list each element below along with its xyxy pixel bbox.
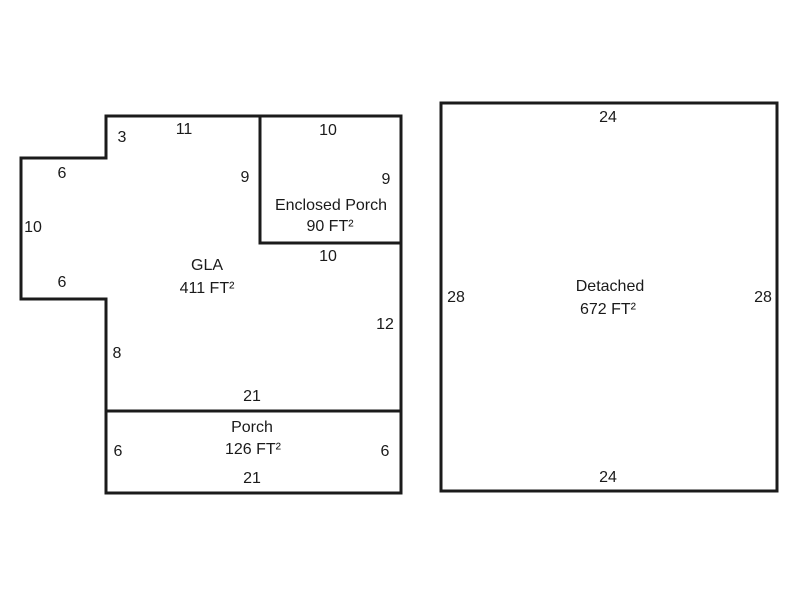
dim-detached-bottom: 24: [599, 470, 617, 486]
enclosed-porch-area: 90 FT²: [306, 219, 353, 235]
dim-enclosed-porch-left-inner: 9: [241, 170, 250, 186]
dim-top: 11: [176, 122, 193, 138]
dim-left-lower: 8: [113, 346, 122, 362]
dim-detached-left: 28: [447, 290, 465, 306]
porch-area: 126 FT²: [225, 442, 281, 458]
dim-top-step: 3: [118, 130, 127, 146]
porch-name: Porch: [231, 420, 273, 436]
detached-outline: [441, 103, 777, 491]
dim-right: 12: [376, 317, 394, 333]
gla-name: GLA: [191, 258, 223, 274]
dim-enclosed-porch-right: 9: [382, 172, 391, 188]
dim-notch-bottom: 6: [58, 275, 67, 291]
dim-detached-top: 24: [599, 110, 617, 126]
enclosed-porch-name: Enclosed Porch: [275, 198, 387, 214]
dim-notch-left: 10: [24, 220, 42, 236]
dim-enclosed-porch-top: 10: [319, 123, 337, 139]
detached-name: Detached: [576, 279, 645, 295]
dim-porch-top: 21: [243, 389, 261, 405]
dim-enclosed-porch-bottom: 10: [319, 249, 337, 265]
dim-porch-left: 6: [114, 444, 123, 460]
dim-porch-bottom: 21: [243, 471, 261, 487]
dim-porch-right: 6: [381, 444, 390, 460]
dim-detached-right: 28: [754, 290, 772, 306]
floorplan-sketch: 3 11 6 10 6 9 9 10 10 12 8 21 6 6 21 GLA…: [0, 0, 800, 600]
dim-notch-top: 6: [58, 166, 67, 182]
gla-area: 411 FT²: [180, 281, 235, 297]
detached-area: 672 FT²: [580, 302, 636, 318]
floorplan-drawing: [0, 0, 800, 600]
